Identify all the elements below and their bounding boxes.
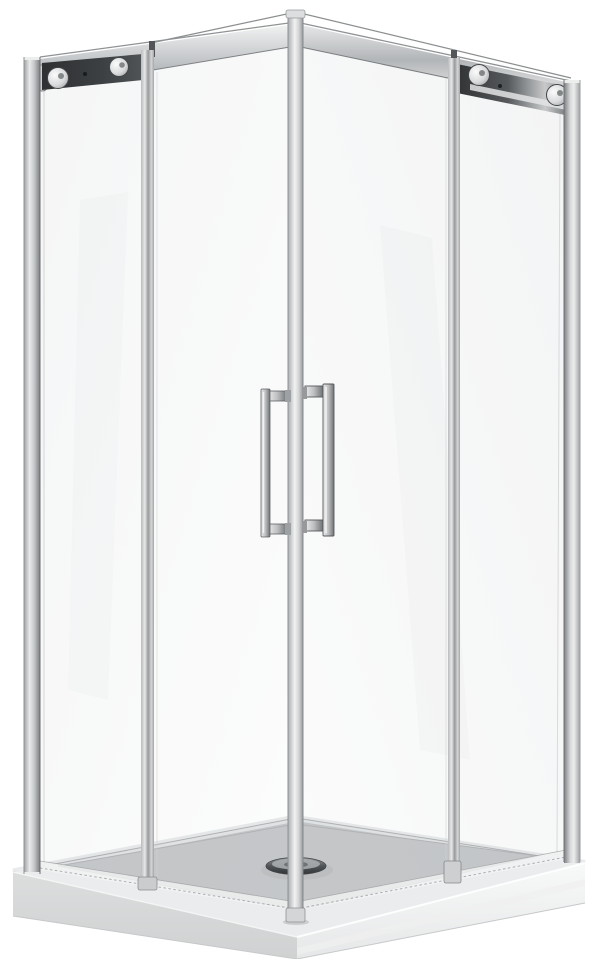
handle-right-top-arm bbox=[305, 386, 323, 397]
corner-post-bar bbox=[288, 13, 303, 913]
bracket-left-screw bbox=[83, 72, 87, 76]
door-post-right-foot bbox=[444, 861, 461, 883]
glass-panels bbox=[40, 45, 571, 908]
corner-post-foot bbox=[286, 908, 305, 922]
shower-enclosure-illustration bbox=[0, 0, 600, 959]
roller-axle-left-inner bbox=[119, 62, 125, 68]
handle-left-top-arm bbox=[268, 391, 287, 401]
door-post-left-foot bbox=[138, 877, 157, 890]
handle-right-bottom-mount bbox=[302, 521, 307, 533]
handle-left-grip-bar bbox=[261, 389, 270, 537]
wall-profile-right-bar bbox=[564, 80, 580, 863]
roller-wheel-right-inner bbox=[469, 65, 490, 86]
corner-post-cap bbox=[286, 10, 305, 18]
handle-left-top-mount bbox=[285, 390, 291, 402]
roller-axle-right-outer bbox=[557, 90, 563, 96]
handle-right-bottom-arm bbox=[305, 520, 323, 531]
wall-profile-right bbox=[564, 80, 580, 863]
door-post-left-bar bbox=[141, 50, 154, 887]
handle-right-grip-bar bbox=[323, 384, 334, 536]
wall-profile-left-bar bbox=[24, 57, 40, 872]
shower-enclosure-photo bbox=[0, 0, 600, 959]
roller-axle-right-inner bbox=[479, 70, 485, 76]
wall-profile-left-cap bbox=[24, 57, 40, 60]
handle-right-top-mount bbox=[302, 387, 307, 399]
wall-profile-left bbox=[24, 57, 40, 874]
roller-axle-left-outer bbox=[58, 73, 64, 79]
door-post-right-bar bbox=[448, 58, 460, 880]
roller-wheel-left-outer bbox=[48, 68, 69, 89]
roller-wheel-left-inner bbox=[110, 58, 129, 77]
wall-profile-right-cap bbox=[564, 80, 580, 83]
handle-left-bottom-mount bbox=[285, 523, 291, 535]
handle-left-bottom-arm bbox=[268, 524, 287, 534]
bracket-right-screw bbox=[498, 84, 502, 88]
